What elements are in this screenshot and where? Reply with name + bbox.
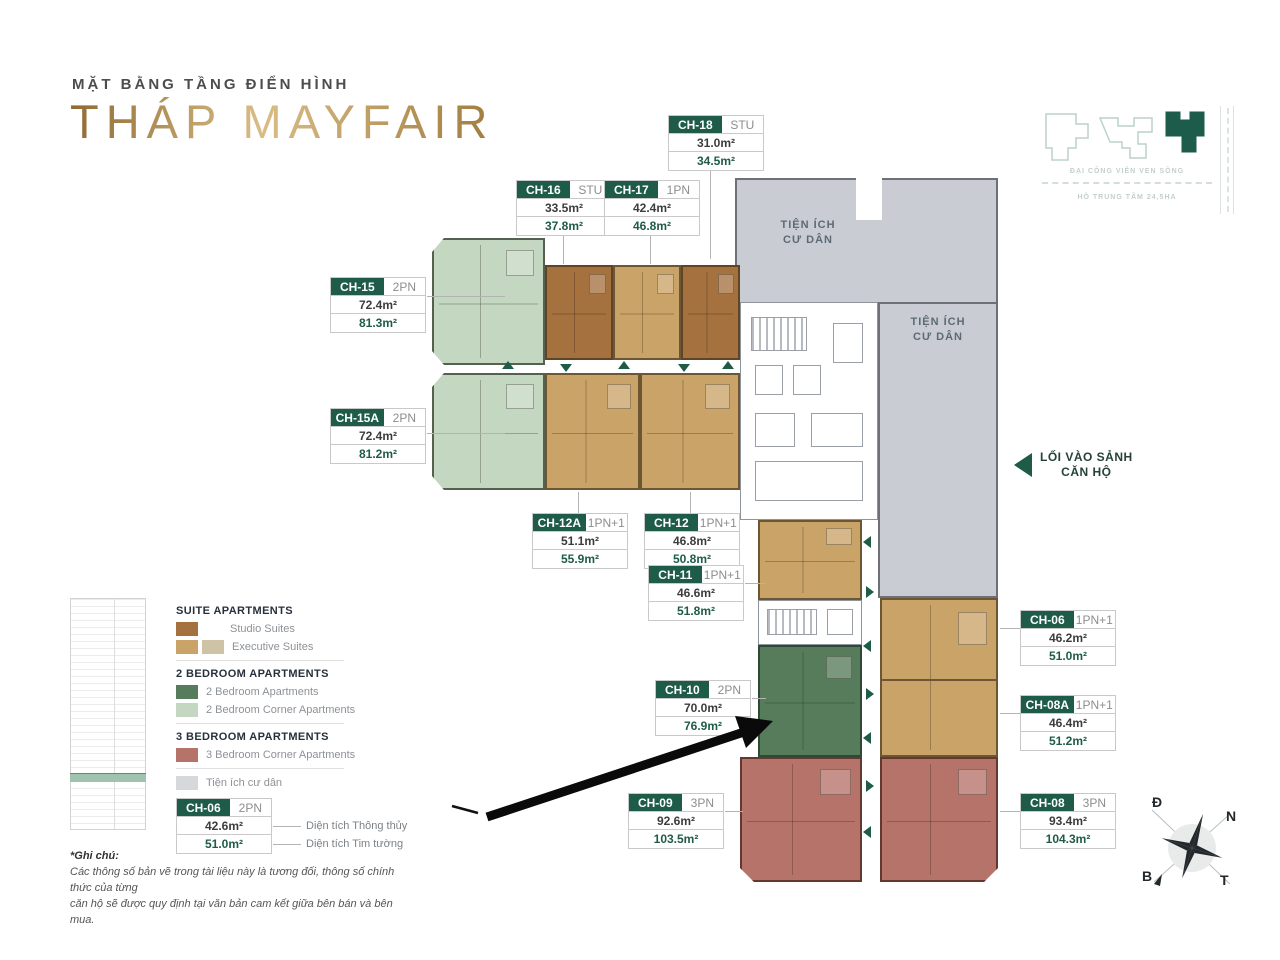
utility-room: [811, 413, 863, 447]
minimap-caption-top: ĐẠI CÔNG VIÊN VEN SÔNG: [1038, 168, 1216, 175]
label-connector: [650, 236, 651, 264]
unit-ch-15a[interactable]: [432, 373, 545, 490]
minimap-dashed-road: [1042, 182, 1212, 184]
legend-key-line: [273, 844, 301, 845]
minimap-building-highlight: [1166, 112, 1204, 152]
legend-divider: [176, 768, 344, 769]
utility-room: [755, 413, 795, 447]
elevator-icon: [793, 365, 821, 395]
minimap-buildings: [1038, 106, 1216, 164]
corridor-arrow-icon: [722, 361, 734, 369]
unit-ch-06-08a[interactable]: [880, 598, 998, 757]
unit-label-ch-12[interactable]: CH-121PN+1 46.8m² 50.8m²: [644, 513, 740, 569]
corridor-arrow-icon: [866, 688, 874, 700]
unit-ch-12a[interactable]: [545, 373, 640, 490]
label-connector: [725, 811, 743, 812]
corridor-arrow-icon: [560, 364, 572, 372]
unit-label-ch-11[interactable]: CH-111PN+1 46.6m² 51.8m²: [648, 565, 744, 621]
footnote-line: căn hộ sẽ được quy định tại văn bản cam …: [70, 896, 400, 928]
unit-ch-15[interactable]: [432, 238, 545, 365]
unit-ch-09[interactable]: [740, 757, 862, 882]
unit-label-ch-08[interactable]: CH-083PN 93.4m² 104.3m²: [1020, 793, 1116, 849]
minimap-building-1: [1046, 114, 1088, 160]
utility-room: [755, 461, 863, 501]
amenity-area-right: [878, 302, 998, 598]
legend-divider: [176, 660, 344, 661]
unit-label-ch-09[interactable]: CH-093PN 92.6m² 103.5m²: [628, 793, 724, 849]
label-connector: [710, 171, 711, 259]
unit-label-ch-15a[interactable]: CH-15A2PN 72.4m² 81.2m²: [330, 408, 426, 464]
label-connector: [745, 583, 765, 584]
corridor-arrow-icon: [866, 780, 874, 792]
footnote-line: Các thông số bản vẽ trong tài liệu này l…: [70, 864, 400, 896]
elevator-icon: [755, 365, 783, 395]
floorplan-page: MẶT BẰNG TẦNG ĐIỂN HÌNH THÁP MAYFAIR ĐẠI…: [0, 0, 1280, 960]
lobby-entrance-marker: LỐI VÀO SẢNH CĂN HỘ: [1014, 450, 1133, 480]
tower-elevation-band: [70, 773, 146, 782]
legend-item-studio-suites: Studio Suites: [176, 622, 295, 636]
legend-swatch-executive-1: [176, 640, 198, 654]
label-connector: [752, 698, 766, 699]
label-connector: [1000, 713, 1020, 714]
corridor-arrow-icon: [618, 361, 630, 369]
corridor-arrow-icon: [863, 640, 871, 652]
unit-ch-17[interactable]: [613, 265, 681, 360]
unit-ch-10[interactable]: [758, 645, 862, 757]
amenity-label-top: TIỆN ÍCH CƯ DÂN: [768, 218, 848, 248]
legend-swatch-2br: [176, 685, 198, 699]
corridor-arrow-icon: [863, 732, 871, 744]
unit-label-ch-12a[interactable]: CH-12A1PN+1 51.1m² 55.9m²: [532, 513, 628, 569]
compass-rose: Đ N B T: [1138, 792, 1242, 896]
service-core-top: [740, 302, 878, 520]
site-minimap: ĐẠI CÔNG VIÊN VEN SÔNG HỒ TRUNG TÂM 24,5…: [1038, 106, 1216, 218]
unit-label-ch-18[interactable]: CH-18STU 31.0m² 34.5m²: [668, 115, 764, 171]
minimap-building-2: [1100, 118, 1152, 158]
service-core-bottom: [758, 600, 862, 645]
legend-net-area-label: Diện tích Thông thủy: [306, 820, 407, 832]
corridor-arrow-icon: [863, 826, 871, 838]
compass-label-bac: B: [1142, 868, 1152, 884]
unit-ch-08[interactable]: [880, 757, 998, 882]
legend-item-amenity: Tiện ích cư dân: [176, 776, 282, 790]
unit-label-ch-10[interactable]: CH-102PN 70.0m² 76.9m²: [655, 680, 751, 736]
legend-item-2br-corner: 2 Bedroom Corner Apartments: [176, 703, 355, 717]
page-title: THÁP MAYFAIR: [70, 94, 494, 149]
footnote: *Ghi chú: Các thông số bản vẽ trong tài …: [70, 848, 400, 928]
page-kicker: MẶT BẰNG TẦNG ĐIỂN HÌNH: [72, 76, 349, 93]
elevator-icon: [833, 323, 863, 363]
legend-swatch-executive-2: [202, 640, 224, 654]
unit-divider: [882, 679, 996, 681]
legend-key-line: [273, 826, 301, 827]
unit-ch-12[interactable]: [640, 373, 740, 490]
unit-label-ch-06[interactable]: CH-061PN+1 46.2m² 51.0m²: [1020, 610, 1116, 666]
unit-label-ch-15[interactable]: CH-152PN 72.4m² 81.3m²: [330, 277, 426, 333]
legend-item-3br-corner: 3 Bedroom Corner Apartments: [176, 748, 355, 762]
elevator-icon: [827, 609, 853, 635]
corridor-arrow-icon: [866, 586, 874, 598]
compass-label-dong: Đ: [1152, 794, 1162, 810]
unit-ch-11[interactable]: [758, 520, 862, 600]
unit-ch-18[interactable]: [681, 265, 740, 360]
label-connector: [563, 236, 564, 264]
compass-label-nam: N: [1226, 808, 1236, 824]
unit-label-ch-08a[interactable]: CH-08A1PN+1 46.4m² 51.2m²: [1020, 695, 1116, 751]
stairs-icon: [767, 609, 817, 635]
label-connector: [427, 433, 505, 434]
compass-label-tay: T: [1220, 872, 1229, 888]
legend-item-executive-suites: Executive Suites: [176, 640, 313, 654]
corridor-arrow-icon: [502, 361, 514, 369]
legend-section-title: 3 BEDROOM APARTMENTS: [176, 731, 329, 743]
entrance-arrow-icon: [1014, 453, 1032, 477]
unit-ch-16[interactable]: [545, 265, 613, 360]
minimap-side-road: [1220, 106, 1234, 214]
amenity-notch: [856, 176, 882, 220]
label-connector: [690, 492, 691, 513]
label-connector: [578, 492, 579, 513]
label-connector: [1000, 811, 1020, 812]
legend-swatch-amenity: [176, 776, 198, 790]
legend-section-title: 2 BEDROOM APARTMENTS: [176, 668, 329, 680]
legend-swatch-2br-corner: [176, 703, 198, 717]
legend-divider: [176, 723, 344, 724]
amenity-label-right: TIỆN ÍCH CƯ DÂN: [898, 315, 978, 345]
legend-section-title: SUITE APARTMENTS: [176, 605, 293, 617]
legend-item-2br: 2 Bedroom Apartments: [176, 685, 319, 699]
corridor-arrow-icon: [678, 364, 690, 372]
legend-sample-label: CH-062PN 42.6m² 51.0m²: [176, 798, 272, 854]
corridor-arrow-icon: [863, 536, 871, 548]
tower-elevation-sketch: [70, 598, 146, 830]
unit-label-ch-17[interactable]: CH-171PN 42.4m² 46.8m²: [604, 180, 700, 236]
legend-swatch-studio: [176, 622, 198, 636]
minimap-caption-bottom: HỒ TRUNG TÂM 24,5HA: [1038, 194, 1216, 201]
stairs-icon: [751, 317, 807, 351]
label-connector: [427, 296, 505, 297]
unit-label-ch-16[interactable]: CH-16STU 33.5m² 37.8m²: [516, 180, 612, 236]
label-connector: [1000, 628, 1020, 629]
legend-swatch-3br-corner: [176, 748, 198, 762]
